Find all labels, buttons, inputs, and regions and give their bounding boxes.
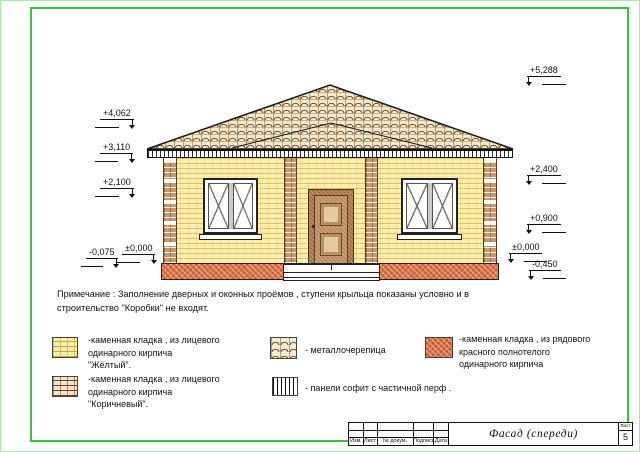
door-handle [312, 225, 315, 228]
elevation-mark: +5,288 [527, 65, 561, 77]
note-text: Примечание : Заполнение дверных и оконны… [57, 287, 537, 315]
legend-swatch-soffit [272, 377, 298, 396]
elevation-mark: +2,100 [100, 177, 134, 189]
col-podpis: Подпись [413, 438, 433, 445]
door-panel-top [320, 203, 342, 226]
level-arrow-icon [528, 225, 529, 233]
elevation-mark: +4,062 [100, 108, 134, 120]
col-izm: Изм. [349, 438, 363, 445]
level-arrow-icon [528, 77, 529, 85]
windowsill-left [199, 234, 262, 240]
entrance-door [308, 189, 354, 265]
window-casement [432, 183, 454, 229]
sheet-number-cell: Лист 5 [618, 423, 632, 445]
legend-label: -каменная кладка , из лицевого одинарног… [88, 334, 263, 372]
level-arrow-icon [131, 154, 132, 162]
elevation-mark: +3,110 [100, 142, 133, 154]
sheet-number: 5 [619, 431, 632, 444]
drawing-title: Фасад (спереди) [450, 423, 617, 445]
legend-label: -каменная кладка , из лицевого одинарног… [88, 373, 263, 411]
elevation-mark: ±0,000 [509, 242, 542, 254]
windowsill-right [397, 234, 462, 240]
legend-swatch-roof-tile [270, 337, 297, 359]
legend-swatch-yellow-brick [52, 337, 78, 358]
window-casement [233, 183, 254, 229]
level-arrow-icon [528, 176, 529, 184]
soffit-eaves-band [147, 149, 513, 158]
level-arrow-icon [132, 120, 133, 128]
pilaster-left-of-door [284, 158, 297, 263]
title-block: Изм. Лист № докум. Подпись Дата Фасад (с… [348, 422, 633, 446]
level-arrow-icon [116, 259, 117, 267]
col-list: Лист [363, 438, 377, 445]
col-data: Дата [433, 438, 449, 445]
legend-label: -каменная кладка , из рядового красного … [459, 333, 629, 371]
window-left [203, 178, 258, 234]
window-casement [406, 183, 428, 229]
level-arrow-icon [530, 271, 531, 279]
title-block-revision-table: Изм. Лист № докум. Подпись Дата [349, 423, 449, 445]
level-arrow-icon [153, 255, 154, 263]
pilaster-left-corner [163, 158, 177, 263]
window-casement [208, 183, 229, 229]
legend-label: - металлочерепица [305, 344, 425, 357]
door-panel-bottom [320, 233, 342, 256]
col-ndokum: № докум. [377, 438, 413, 445]
level-arrow-icon [510, 254, 511, 262]
sheet-label: Лист [619, 423, 632, 431]
elevation-mark: -0,075 [86, 247, 118, 259]
elevation-mark: ±0,000 [122, 243, 155, 255]
elevation-mark: +0,900 [527, 213, 561, 225]
level-arrow-icon [132, 189, 133, 197]
legend-swatch-brown-brick [52, 376, 78, 397]
pilaster-right-corner [483, 158, 497, 263]
legend-swatch-red-brick [425, 337, 453, 358]
drawing-sheet: +4,062 +3,110 +2,100 -0,075 ±0,000 +5,28… [0, 0, 640, 452]
elevation-mark: -0,450 [529, 259, 561, 271]
window-right [401, 178, 458, 234]
pilaster-right-of-door [365, 158, 378, 263]
door-leaf [314, 195, 348, 264]
porch-steps [283, 264, 380, 281]
legend-label: - панели софит с частичной перф . [305, 382, 485, 395]
elevation-mark: +2,400 [527, 164, 561, 176]
